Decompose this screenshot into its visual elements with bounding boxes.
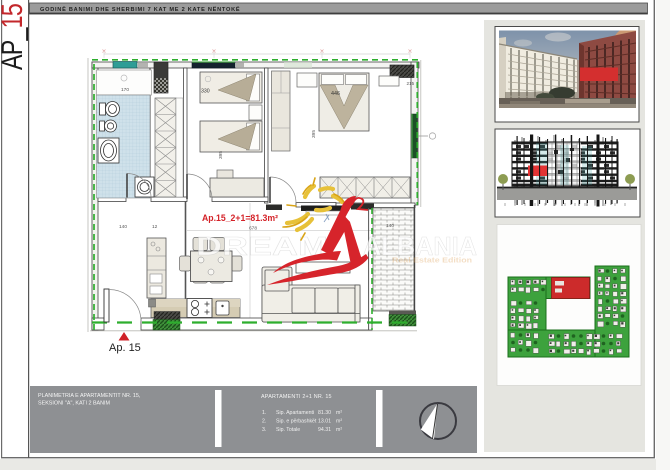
svg-text:Ap. 15: Ap. 15 — [109, 342, 141, 354]
svg-text:GODINË BANIMI DHE SHERBIMI 7 K: GODINË BANIMI DHE SHERBIMI 7 KAT ME 2 KA… — [40, 6, 240, 13]
svg-text:1.: 1. — [262, 410, 266, 416]
svg-text:m²: m² — [336, 410, 342, 416]
svg-text:Sip. e përbashkët: Sip. e përbashkët — [276, 419, 317, 425]
svg-text:94.31: 94.31 — [318, 427, 331, 433]
svg-text:Sip. Apartamenti: Sip. Apartamenti — [276, 410, 314, 416]
svg-text:m²: m² — [336, 419, 342, 425]
svg-text:Sip. Totale: Sip. Totale — [276, 427, 300, 433]
svg-text:446: 446 — [331, 91, 340, 97]
svg-text:140: 140 — [386, 223, 394, 229]
svg-text:Ap.15_2+1=81.3m²: Ap.15_2+1=81.3m² — [202, 213, 278, 223]
svg-text:m²: m² — [336, 427, 342, 433]
svg-text:2.: 2. — [262, 419, 266, 425]
svg-text:SEKSIONI "A", KATI 2 BANIM: SEKSIONI "A", KATI 2 BANIM — [38, 401, 111, 407]
svg-text:170: 170 — [121, 87, 129, 93]
svg-text:395: 395 — [311, 130, 317, 138]
svg-text:330: 330 — [201, 89, 210, 95]
svg-text:12: 12 — [152, 224, 158, 230]
svg-text:140: 140 — [119, 224, 127, 230]
svg-text:APARTAMENTI 2+1 NR. 15: APARTAMENTI 2+1 NR. 15 — [261, 394, 332, 400]
svg-text:3.: 3. — [262, 427, 266, 433]
svg-text:395: 395 — [218, 151, 224, 159]
svg-text:215: 215 — [407, 81, 415, 86]
svg-text:13.01: 13.01 — [318, 419, 331, 425]
svg-text:PLANIMETRIA E APARTAMENTIT NR.: PLANIMETRIA E APARTAMENTIT NR. 15, — [38, 393, 141, 399]
svg-text:81.30: 81.30 — [318, 410, 331, 416]
svg-text:Real Estate Edition: Real Estate Edition — [392, 256, 472, 265]
svg-text:AP_15: AP_15 — [0, 4, 29, 70]
